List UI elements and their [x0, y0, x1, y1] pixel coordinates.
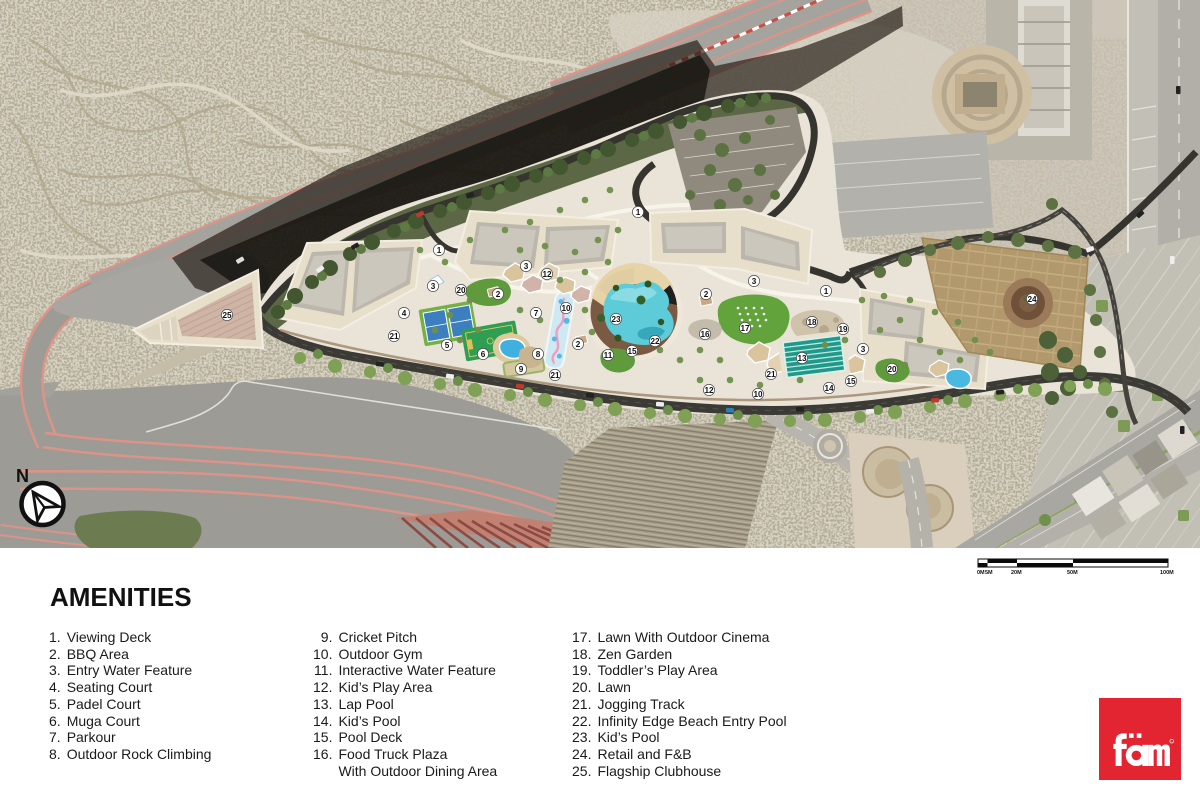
svg-text:6: 6	[481, 350, 486, 359]
svg-text:16: 16	[700, 330, 710, 339]
svg-text:15: 15	[627, 347, 637, 356]
svg-text:1: 1	[437, 246, 442, 255]
svg-text:20: 20	[887, 365, 897, 374]
svg-text:4: 4	[402, 309, 407, 318]
svg-text:3: 3	[431, 282, 436, 291]
svg-text:10: 10	[753, 390, 763, 399]
svg-text:11: 11	[604, 351, 613, 360]
svg-text:15: 15	[846, 377, 856, 386]
svg-text:20: 20	[456, 286, 466, 295]
svg-text:21: 21	[766, 370, 776, 379]
svg-text:22: 22	[650, 337, 660, 346]
svg-text:2: 2	[704, 290, 709, 299]
svg-text:5: 5	[445, 341, 450, 350]
svg-text:13: 13	[797, 354, 807, 363]
svg-text:19: 19	[838, 325, 848, 334]
svg-text:2: 2	[496, 290, 501, 299]
svg-text:14: 14	[824, 384, 834, 393]
svg-text:8: 8	[536, 350, 541, 359]
svg-text:21: 21	[550, 371, 560, 380]
svg-text:20M: 20M	[1011, 570, 1022, 576]
svg-text:10: 10	[561, 304, 571, 313]
svg-text:24: 24	[1027, 295, 1037, 304]
svg-text:3: 3	[861, 345, 866, 354]
svg-text:7: 7	[534, 309, 539, 318]
svg-text:2: 2	[576, 340, 581, 349]
svg-text:0M: 0M	[977, 570, 985, 576]
svg-text:3: 3	[524, 262, 529, 271]
svg-text:3: 3	[752, 277, 757, 286]
svg-text:1: 1	[636, 208, 641, 217]
svg-text:50M: 50M	[1067, 570, 1078, 576]
svg-text:9: 9	[519, 365, 524, 374]
svg-text:17: 17	[740, 324, 750, 333]
svg-text:12: 12	[542, 270, 552, 279]
svg-text:5M: 5M	[985, 570, 993, 576]
svg-text:100M: 100M	[1160, 570, 1174, 576]
svg-text:N: N	[16, 466, 29, 486]
svg-text:21: 21	[389, 332, 399, 341]
svg-text:12: 12	[704, 386, 714, 395]
svg-text:18: 18	[807, 318, 817, 327]
svg-text:25: 25	[222, 311, 232, 320]
svg-text:23: 23	[611, 315, 621, 324]
svg-text:1: 1	[824, 287, 829, 296]
